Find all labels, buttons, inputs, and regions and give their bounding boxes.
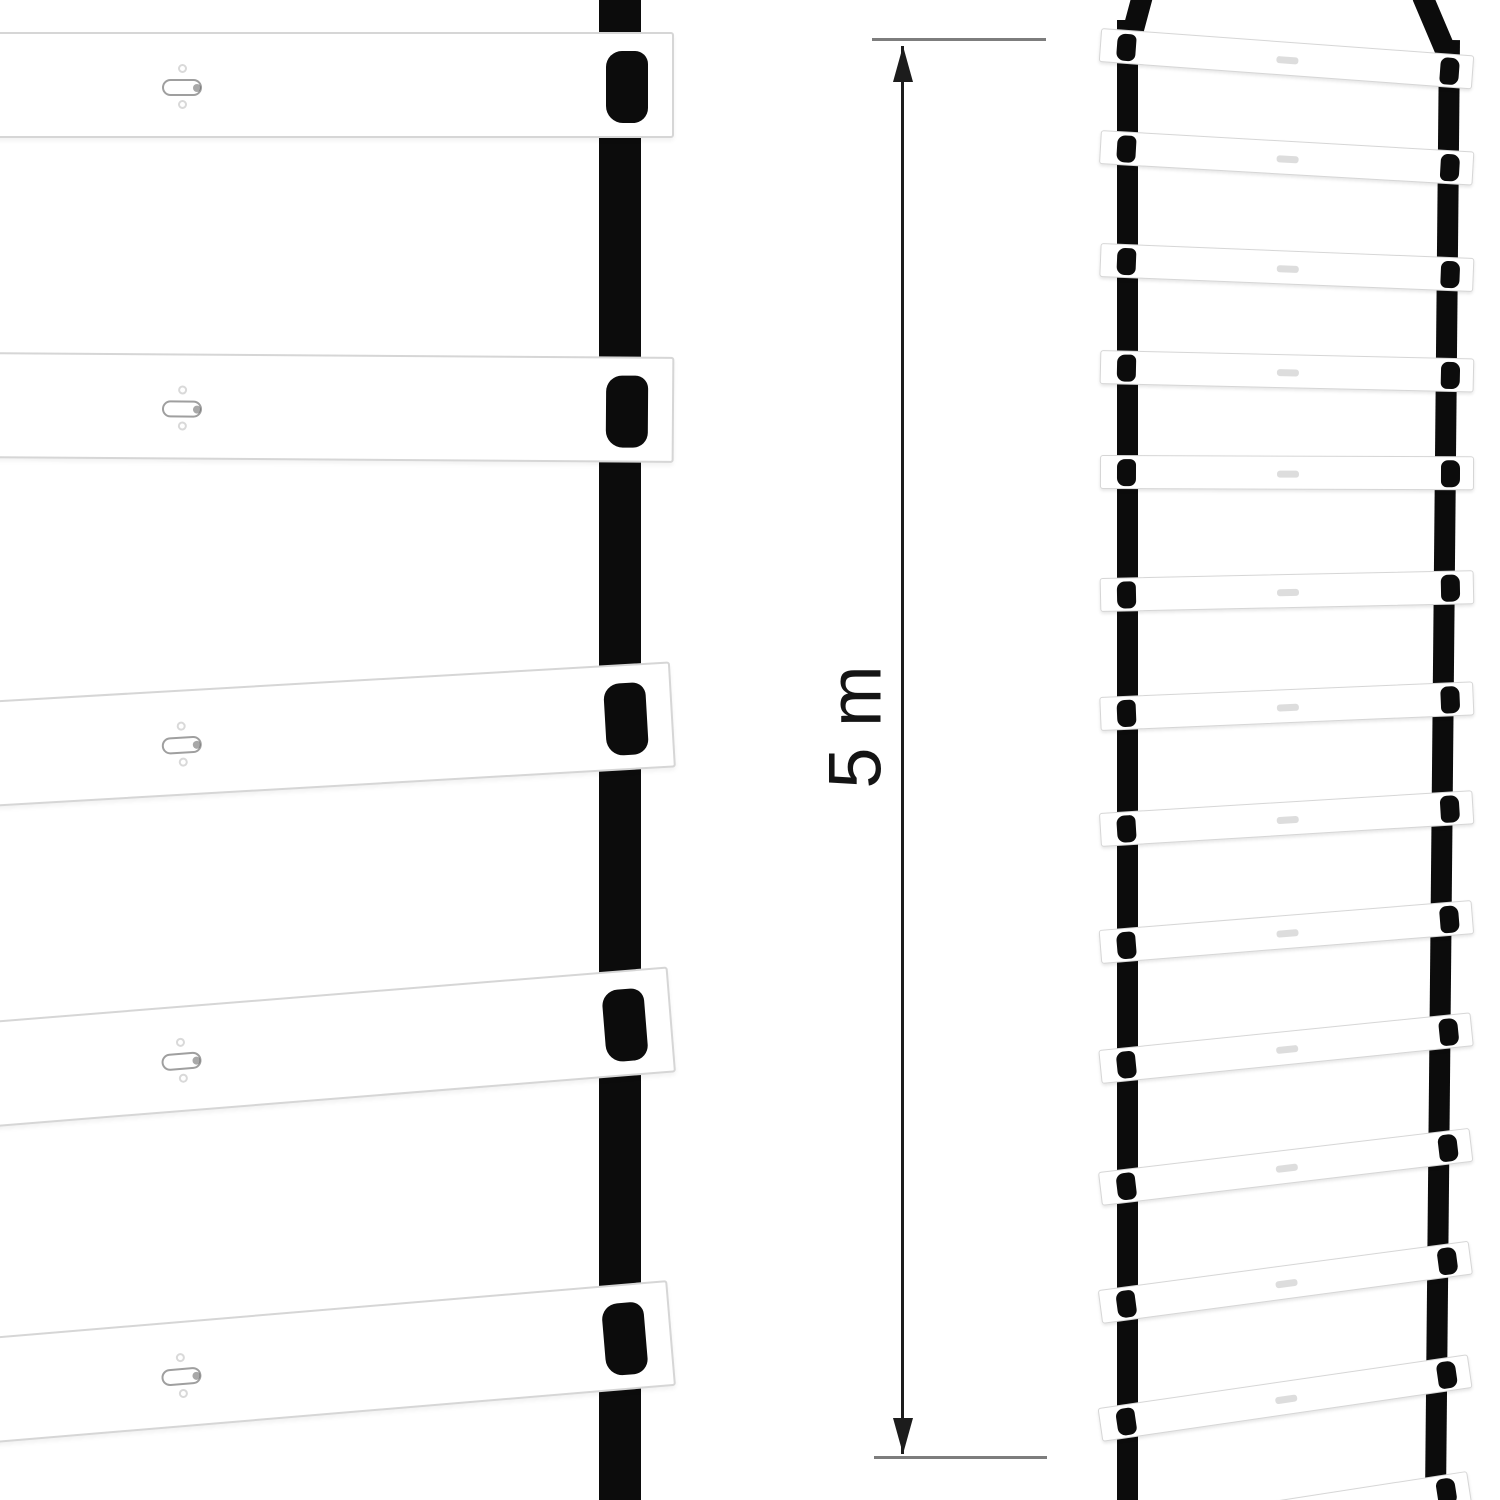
arrowhead-up	[893, 46, 913, 82]
extension-line-top	[872, 38, 1046, 41]
extension-line-bottom	[874, 1456, 1047, 1459]
dimension-label: 5 m	[813, 665, 898, 788]
dimension-annotation: 5 m	[0, 0, 1500, 1500]
arrowhead-down	[893, 1418, 913, 1454]
dimension-line	[901, 46, 904, 1454]
product-dimension-illustration: 5 m	[0, 0, 1500, 1500]
